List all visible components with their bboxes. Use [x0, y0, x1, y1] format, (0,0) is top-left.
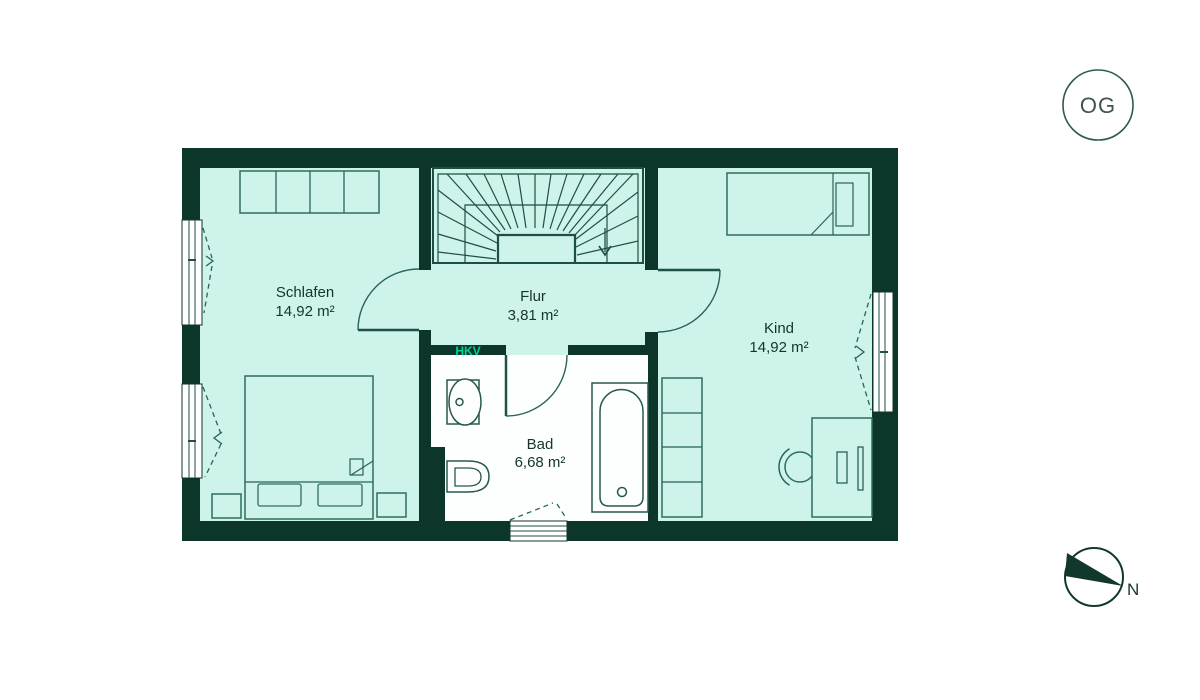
floorplan-canvas: Schlafen 14,92 m² Flur 3,81 m² Kind 14,9… [0, 0, 1200, 700]
floor-badge: OG [1063, 70, 1133, 140]
bathtub [592, 383, 648, 512]
nightstand [377, 493, 406, 517]
door-opening-bad [506, 345, 568, 355]
room-name-bad: Bad [527, 436, 554, 453]
room-name-schlafen: Schlafen [276, 284, 334, 301]
door-opening-schlafen [419, 270, 431, 330]
hkv-label: HKV [455, 344, 480, 358]
floor-badge-label: OG [1080, 93, 1116, 118]
pillow [258, 484, 301, 506]
compass: N [1065, 548, 1139, 606]
toilet [447, 461, 489, 492]
door-opening-kind [645, 270, 658, 332]
room-name-kind: Kind [764, 320, 794, 337]
room-area-schlafen: 14,92 m² [275, 303, 334, 320]
nightstand [212, 494, 241, 518]
floorplan-page: Schlafen 14,92 m² Flur 3,81 m² Kind 14,9… [0, 0, 1200, 700]
room-area-bad: 6,68 m² [515, 454, 566, 471]
room-area-flur: 3,81 m² [508, 307, 559, 324]
room-floor-bad-niche [431, 355, 445, 447]
chair-seat [785, 452, 815, 482]
sink [447, 379, 481, 425]
tub-drain [618, 488, 627, 497]
pillow [318, 484, 362, 506]
room-name-flur: Flur [520, 288, 546, 305]
sink-drain [456, 399, 463, 406]
room-area-kind: 14,92 m² [749, 339, 808, 356]
north-label: N [1127, 580, 1139, 599]
